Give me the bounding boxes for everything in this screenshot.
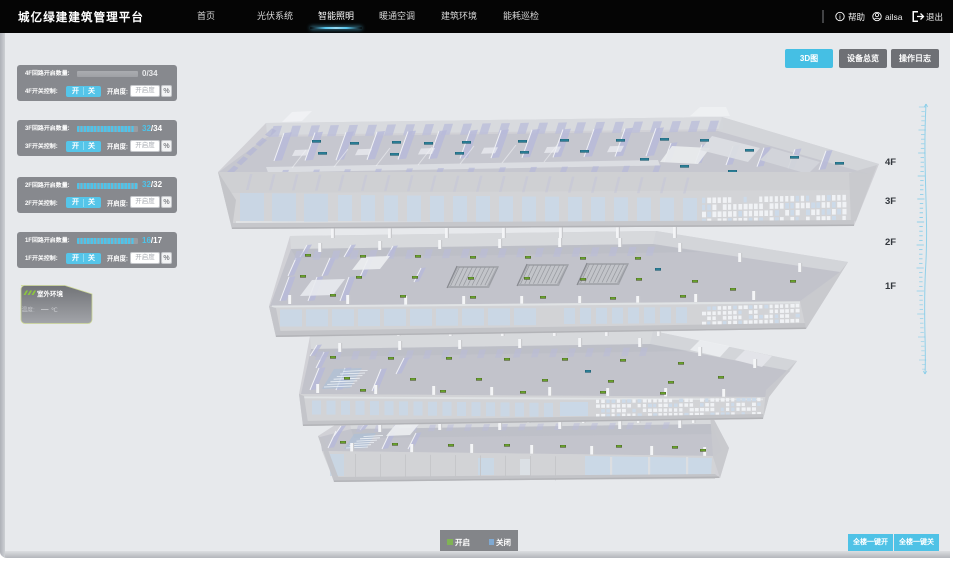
svg-text:室外环境: 室外环境 xyxy=(37,289,64,298)
svg-text:℃: ℃ xyxy=(51,308,58,314)
svg-text:ailsa: ailsa xyxy=(885,12,903,22)
svg-text:—: — xyxy=(41,305,49,314)
svg-text:退出: 退出 xyxy=(926,12,943,22)
svg-text:温度:: 温度: xyxy=(22,306,36,314)
svg-text:帮助: 帮助 xyxy=(848,12,865,22)
